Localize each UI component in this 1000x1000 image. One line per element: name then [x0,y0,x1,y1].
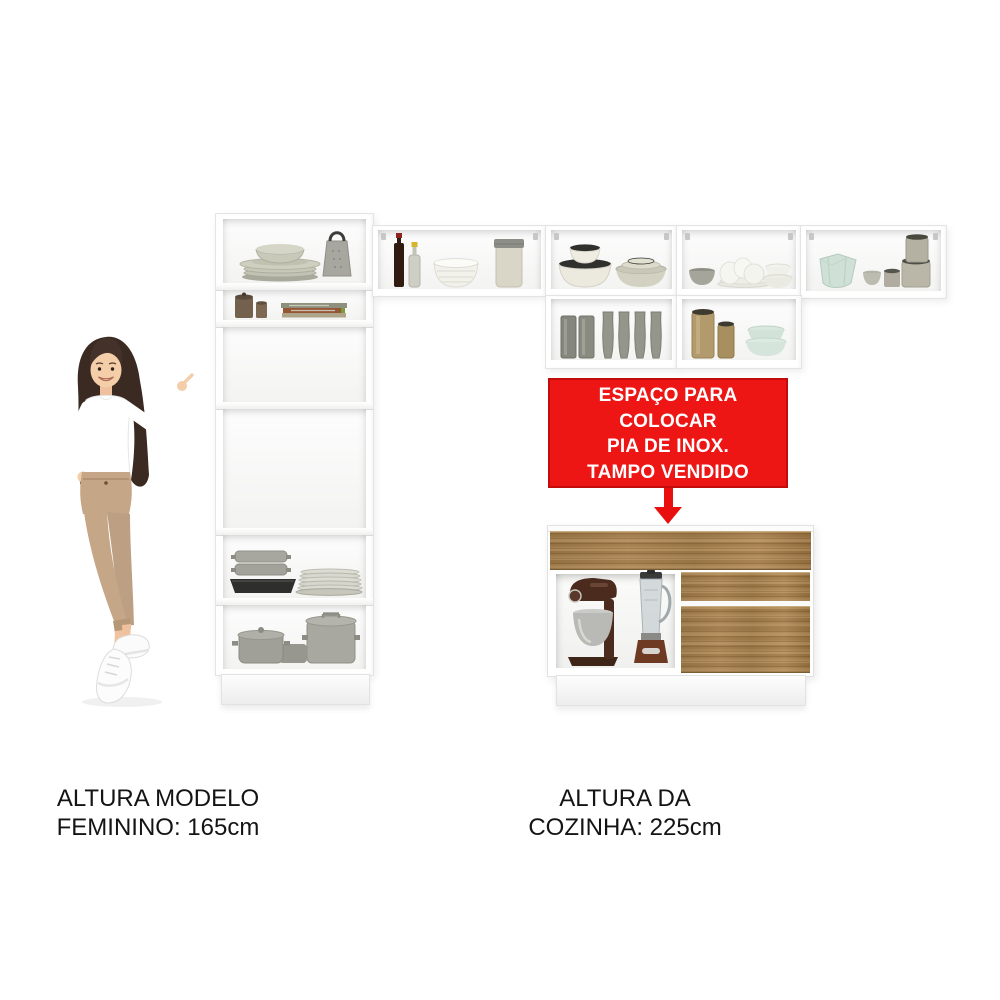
tall-shelf-1 [223,219,366,283]
forearm [163,392,180,435]
blender [628,570,676,668]
notice-line: PIA DE INOX. [548,434,788,460]
gold-canisters-and-mint-bowls [682,300,794,360]
canisters-and-cookbooks [223,290,366,320]
bottles-bowl-jar [378,231,539,289]
tumblers-and-goblets [551,300,670,360]
wood-drawer [681,572,810,603]
upper-section-3 [676,225,802,297]
down-arrow-icon [654,507,682,524]
kitchen-height-caption: ALTURA DA COZINHA: 225cm [500,784,750,842]
lower-row-comp-2 [682,299,796,360]
pointing-finger [183,375,192,384]
tall-cabinet [215,213,374,676]
tall-cabinet-base [221,674,370,705]
notice-box: ESPAÇO PARA COLOCAR PIA DE INOX. TAMPO V… [548,378,788,488]
upper-comp-2 [551,230,672,289]
caption-line: ALTURA MODELO [33,784,283,813]
lower-row-section-2 [676,295,802,369]
sink-cabinet-base [556,675,806,706]
floor-shadow [82,697,162,707]
white-dishes-cluster [682,231,794,289]
model-woman [56,331,201,709]
tall-shelf-5 [223,535,366,598]
stand-mixer [560,571,626,668]
tall-shelf-4-empty [223,409,366,528]
notice-line: TAMPO VENDIDO [548,460,788,486]
upper-comp-1 [378,230,541,289]
eye-left [98,367,101,370]
pots-with-lids [223,605,366,669]
caption-line: FEMININO: 165cm [33,813,283,842]
tall-shelf-2 [223,290,366,320]
upper-section-4 [800,225,947,299]
caption-line: COZINHA: 225cm [500,813,750,842]
caption-line: ALTURA DA [500,784,750,813]
notice-line: ESPAÇO PARA COLOCAR [548,383,788,434]
tall-shelf-3-empty [223,327,366,402]
down-arrow-stem [664,488,673,508]
tall-shelf-6 [223,605,366,669]
dark-rim-bowls [551,231,670,289]
stacked-plates-and-grater [223,219,366,283]
upper-cabinet-lower-row [545,295,800,367]
product-image: ESPAÇO PARA COLOCAR PIA DE INOX. TAMPO V… [0,0,1000,1000]
lower-row-comp-1 [551,299,672,360]
upper-section-1 [372,225,547,297]
lower-row-section-1 [545,295,678,369]
model-height-caption: ALTURA MODELO FEMININO: 165cm [33,784,283,842]
open-compartment [550,572,678,674]
upper-cabinets [372,225,945,295]
wood-door [681,606,810,673]
mint-bowls-and-canisters [806,231,939,291]
sink-front-wood-panel [550,531,811,570]
button [104,481,108,485]
upper-comp-4 [806,230,941,291]
pans-and-plate-stack [223,535,366,598]
upper-comp-3 [682,230,796,289]
open-compartment-interior [556,574,675,668]
trouser-hips [80,472,132,514]
sink-cabinet [547,525,814,677]
eye-right [111,367,114,370]
upper-section-2 [545,225,678,297]
